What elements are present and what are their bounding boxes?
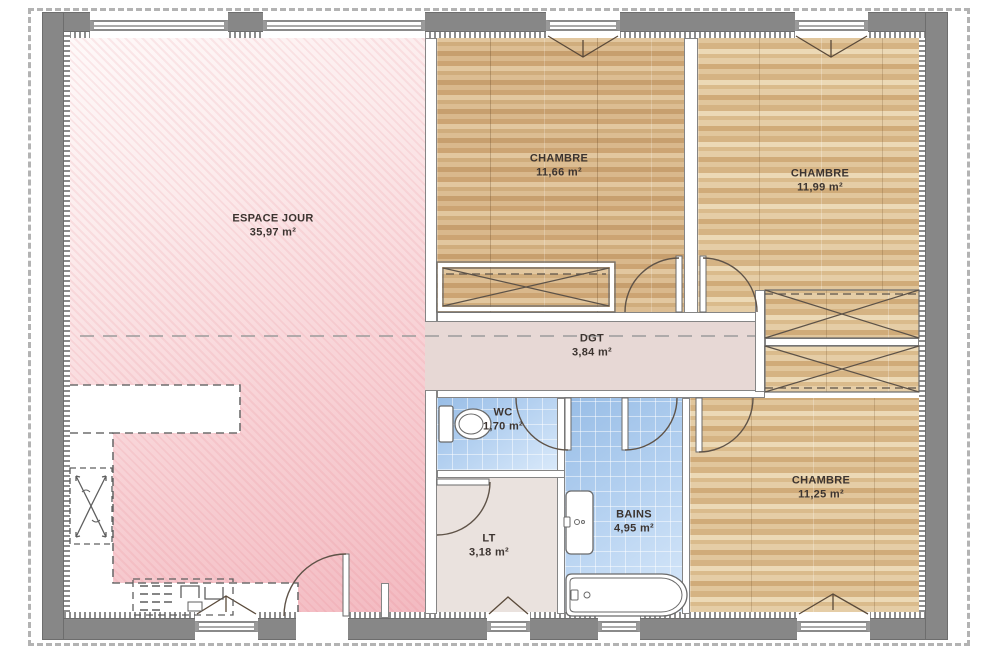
- room-espace-jour-floor: [70, 38, 425, 612]
- window-kitchen: [195, 612, 258, 640]
- label-bains: BAINS 4,95 m²: [614, 508, 654, 537]
- room-area: 11,66 m²: [530, 166, 588, 180]
- wall-wc-lt: [437, 470, 565, 478]
- kitchen-counter-area: [70, 385, 240, 433]
- wall-hall-end: [755, 290, 765, 392]
- wall-hall-north: [437, 312, 765, 322]
- wall-entrance-stub: [381, 583, 389, 618]
- room-area: 11,99 m²: [791, 181, 849, 195]
- room-area: 3,18 m²: [469, 546, 509, 560]
- wall-living-wc-lt: [425, 390, 437, 614]
- window-espace-jour-2: [263, 12, 425, 38]
- room-chambre3-floor: [690, 398, 919, 612]
- room-name: CHAMBRE: [792, 474, 850, 488]
- room-name: BAINS: [614, 508, 654, 522]
- window-lt: [487, 612, 530, 640]
- kitchen-side-area: [70, 433, 113, 612]
- wall-hall-south: [437, 390, 765, 398]
- entrance-door-opening: [296, 612, 348, 640]
- room-area: 1,70 m²: [483, 420, 523, 434]
- kitchen-bottom-area: [113, 583, 298, 612]
- exterior-wall-left: [42, 12, 64, 640]
- window-chambre2: [795, 12, 868, 38]
- window-chambre1: [546, 12, 620, 38]
- wall-bains-chambre3: [682, 398, 690, 614]
- room-area: 3,84 m²: [572, 346, 612, 360]
- room-name: WC: [483, 406, 523, 420]
- room-area: 35,97 m²: [232, 226, 313, 240]
- room-name: DGT: [572, 332, 612, 346]
- room-name: CHAMBRE: [530, 152, 588, 166]
- label-chambre2: CHAMBRE 11,99 m²: [791, 167, 849, 196]
- label-lt: LT 3,18 m²: [469, 532, 509, 561]
- label-wc: WC 1,70 m²: [483, 406, 523, 435]
- room-name: CHAMBRE: [791, 167, 849, 181]
- wall-living-chambre1: [425, 38, 437, 322]
- window-bains: [598, 612, 640, 640]
- insulation-left: [64, 32, 70, 612]
- label-dgt: DGT 3,84 m²: [572, 332, 612, 361]
- insulation-right: [919, 38, 925, 612]
- label-espace-jour: ESPACE JOUR 35,97 m²: [232, 212, 313, 241]
- wall-closet-divider: [765, 338, 919, 346]
- room-area: 4,95 m²: [614, 522, 654, 536]
- room-name: LT: [469, 532, 509, 546]
- wall-wc-bains: [557, 398, 565, 614]
- exterior-wall-right: [925, 12, 948, 640]
- room-bains-floor: [565, 398, 682, 612]
- floor-plan: ESPACE JOUR 35,97 m² CHAMBRE 11,66 m² CH…: [0, 0, 1000, 650]
- room-name: ESPACE JOUR: [232, 212, 313, 226]
- label-chambre1: CHAMBRE 11,66 m²: [530, 152, 588, 181]
- window-espace-jour-1: [90, 12, 228, 38]
- window-chambre3: [797, 612, 870, 640]
- room-area: 11,25 m²: [792, 488, 850, 502]
- label-chambre3: CHAMBRE 11,25 m²: [792, 474, 850, 503]
- wall-chambre1-chambre2: [684, 38, 698, 322]
